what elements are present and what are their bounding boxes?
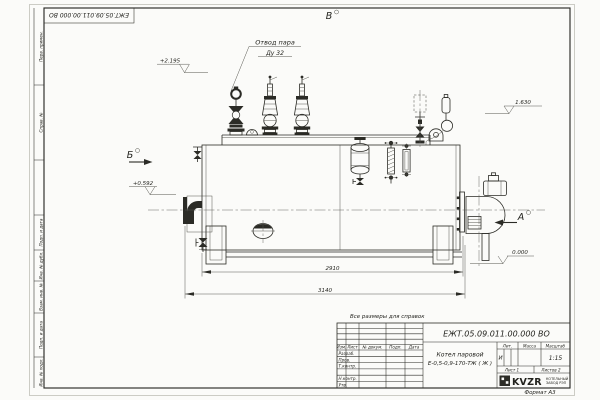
centerlines bbox=[148, 90, 545, 268]
elevation-value: 1.630 bbox=[515, 100, 531, 106]
view-marker-v: В bbox=[326, 10, 339, 22]
sheets-total: Листов 2 bbox=[540, 367, 561, 372]
margin-label: Инв. № подл. bbox=[39, 358, 44, 386]
elevation-value: 0.000 bbox=[512, 250, 528, 256]
view-label: В bbox=[326, 11, 333, 22]
tb-row: Утв. bbox=[339, 383, 348, 388]
product-type: Е-0,5-0,9-170-ТЖ ( Ж ) bbox=[428, 361, 492, 367]
margin-label: Перв. примен. bbox=[39, 31, 44, 62]
tb-col: Дата bbox=[408, 345, 420, 350]
stamp-doc-number: ЕЖТ.05.09.011.00.000 ВО bbox=[49, 11, 129, 18]
lifting-lug bbox=[429, 129, 443, 141]
elevation-value: +2.195 bbox=[160, 58, 181, 64]
tb-col: № докум. bbox=[361, 345, 382, 350]
elevation-value: +0.592 bbox=[133, 181, 154, 187]
view-marker-b: Б bbox=[127, 149, 153, 166]
tb-col: Изм. bbox=[337, 345, 347, 350]
boiler-general-view-drawing: ЕЖТ.05.09.011.00.000 ВО Перв. примен. Сп… bbox=[0, 0, 600, 400]
margin-label: Инв. № дубл. bbox=[39, 251, 44, 279]
steam-outlet-valve bbox=[228, 87, 245, 136]
steam-outlet-callout: Отвод пара Ду 32 bbox=[231, 39, 301, 92]
safety-valve bbox=[294, 76, 310, 135]
lifting-pad bbox=[247, 130, 258, 136]
tb-row: Пров. bbox=[339, 357, 351, 362]
company-logo: KVZR КОТЕЛЬНЫЙ ЗАВОД РЭП bbox=[500, 376, 569, 389]
logo-text: KVZR bbox=[512, 377, 542, 388]
view-label: Б bbox=[127, 150, 134, 161]
tb-row: Н.контр. bbox=[339, 376, 357, 381]
scale-label: Масштаб bbox=[546, 344, 566, 349]
safety-valve bbox=[262, 76, 278, 135]
water-column bbox=[351, 137, 369, 185]
dimension-shell-length: 2910 bbox=[202, 236, 463, 277]
reference-note: Все размеры для справок bbox=[350, 314, 425, 320]
format-label: Формат А3 bbox=[524, 390, 556, 396]
margin-label: Подп. и дата bbox=[39, 218, 44, 246]
callout-text: Ду 32 bbox=[265, 50, 284, 57]
tb-col: Подп. bbox=[389, 345, 401, 350]
blowdown-elbow bbox=[183, 147, 212, 232]
lit-label: Лит. bbox=[502, 344, 512, 349]
drawing-sheet: ЕЖТ.05.09.011.00.000 ВО Перв. примен. Сп… bbox=[0, 0, 600, 400]
tb-row: Разраб. bbox=[339, 351, 355, 356]
logo-sub: КОТЕЛЬНЫЙ bbox=[546, 376, 569, 381]
margin-label: Справ. № bbox=[39, 112, 44, 133]
scale-value: 1:15 bbox=[549, 355, 563, 362]
manhole bbox=[251, 220, 275, 243]
boiler-supports bbox=[206, 226, 462, 264]
margin-labels: Перв. примен. Справ. № Подп. и дата Инв.… bbox=[39, 31, 44, 386]
sheet-number: Лист 1 bbox=[504, 367, 519, 372]
margin-label: Взам. инв. № bbox=[39, 282, 44, 311]
title-block: Все размеры для справок ЕЖТ.05.09.011.00… bbox=[337, 314, 570, 396]
burner-unit bbox=[457, 173, 507, 261]
product-name: Котел паровой bbox=[436, 352, 483, 359]
margin-label: Подп. и дата bbox=[39, 321, 44, 349]
dimension-overall-length: 3140 bbox=[185, 226, 465, 299]
boiler-shell bbox=[202, 135, 460, 250]
lit-value: И bbox=[498, 356, 502, 362]
elevation-mark-top: +2.195 bbox=[157, 58, 208, 72]
tb-col: Лист bbox=[346, 345, 358, 350]
elevation-mark-axis: +0.592 bbox=[129, 181, 176, 195]
elevation-mark-ground: 0.000 bbox=[470, 250, 534, 264]
logo-sub: ЗАВОД РЭП bbox=[546, 381, 567, 385]
view-label: А bbox=[517, 212, 525, 223]
dimension-value: 3140 bbox=[318, 288, 332, 294]
doc-number: ЕЖТ.05.09.011.00.000 ВО bbox=[443, 330, 550, 339]
view-marker-a: А bbox=[495, 211, 531, 226]
dimension-value: 2910 bbox=[326, 266, 340, 272]
mass-label: Масса bbox=[523, 344, 537, 349]
tb-row: Т.контр. bbox=[339, 364, 357, 369]
elevation-mark-gauge: 1.630 bbox=[485, 100, 542, 114]
water-level-gauge bbox=[385, 141, 411, 184]
callout-text: Отвод пара bbox=[255, 39, 295, 47]
